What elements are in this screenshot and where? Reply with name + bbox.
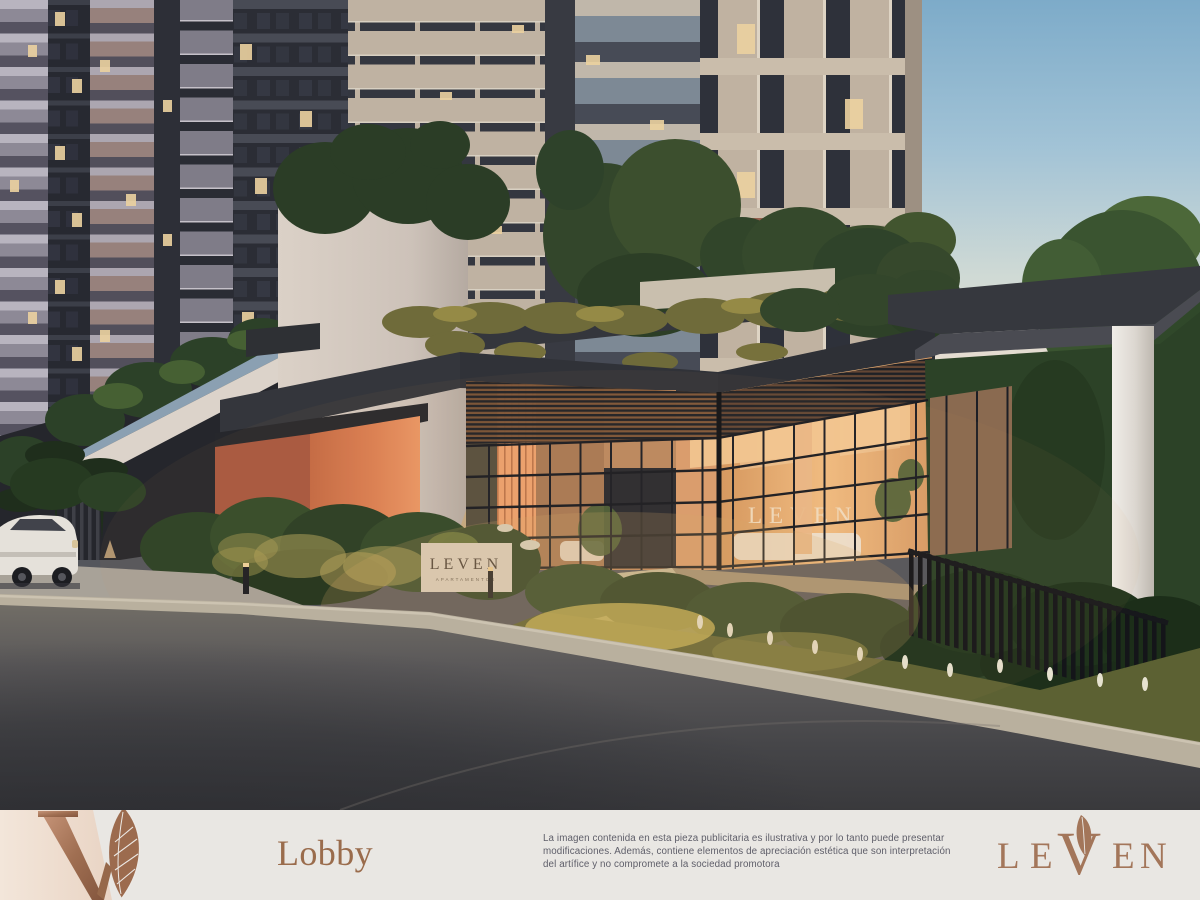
svg-text:L: L [997,836,1020,877]
svg-text:E: E [1030,836,1053,877]
svg-text:N: N [1140,836,1167,877]
svg-text:E: E [1112,836,1135,877]
